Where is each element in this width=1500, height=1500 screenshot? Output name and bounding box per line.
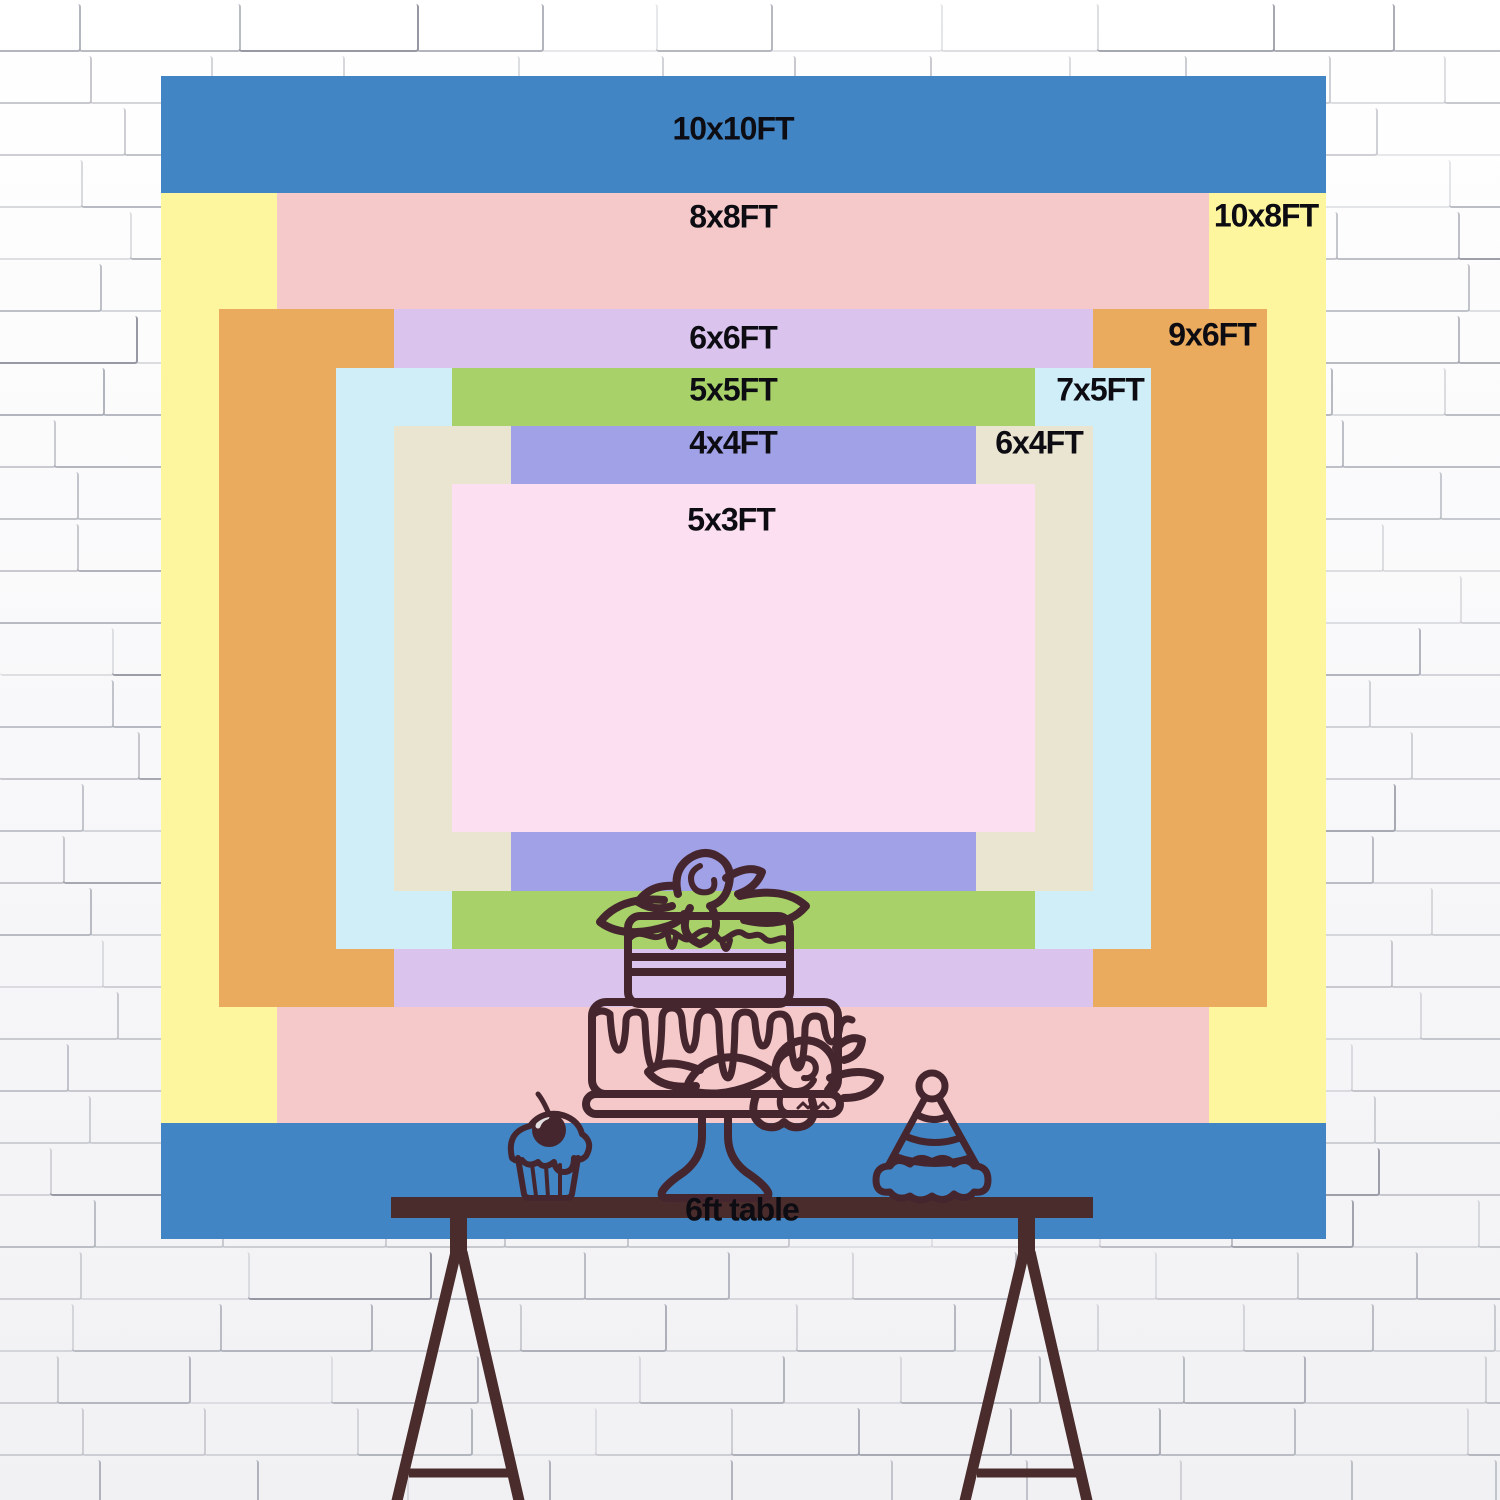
size-label-10x8: 10x8FT [1214,198,1318,235]
size-label-10x10: 10x10FT [672,111,793,148]
size-label-4x4: 4x4FT [689,425,776,462]
size-label-6x6: 6x6FT [689,320,776,357]
size-label-5x3: 5x3FT [687,502,774,539]
size-label-5x5: 5x5FT [689,372,776,409]
size-label-9x6: 9x6FT [1168,317,1255,354]
size-label-7x5: 7x5FT [1056,372,1143,409]
backdrop-size-chart-scene: 10x10FT 10x8FT 8x8FT 9x6FT 6x6FT 7x5FT 5… [0,0,1500,1500]
size-label-8x8: 8x8FT [689,199,776,236]
table-size-label: 6ft table [685,1192,799,1229]
size-label-6x4: 6x4FT [995,425,1082,462]
